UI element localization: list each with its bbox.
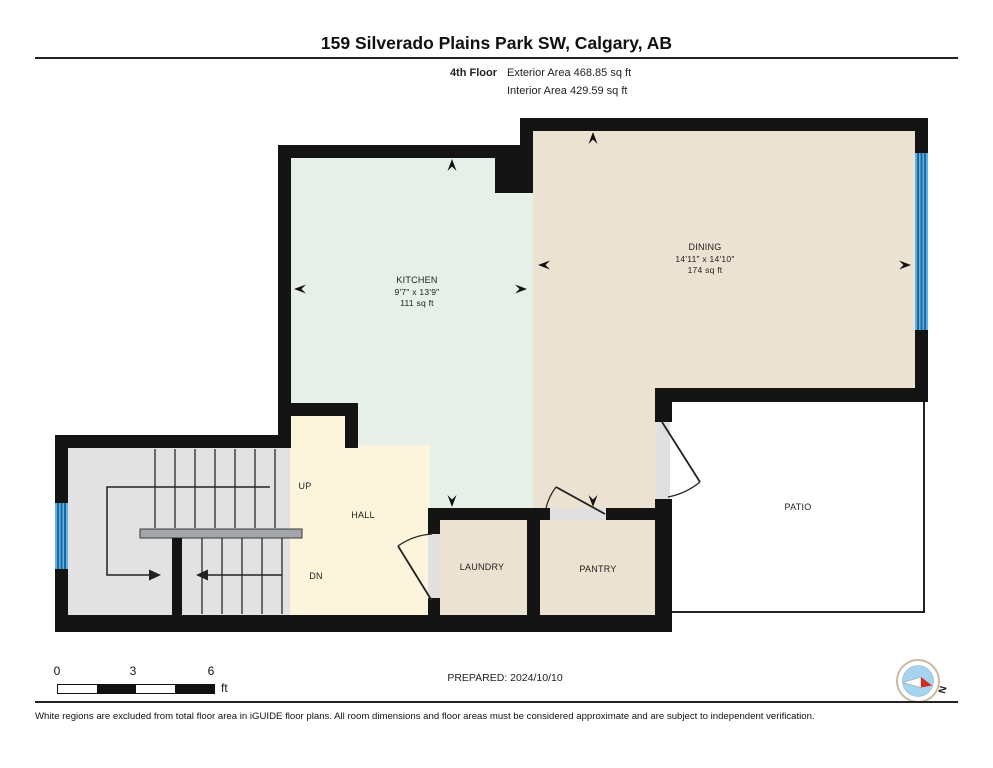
door-laundry (398, 534, 432, 601)
up-label: UP (293, 481, 317, 493)
dining-arrow-left (538, 261, 550, 270)
door-patio (662, 422, 700, 497)
door-pantry (546, 487, 605, 514)
scale-tick-0: 0 (47, 664, 67, 678)
kitchen-arrow-right (515, 285, 527, 294)
floor-plan-page: 159 Silverado Plains Park SW, Calgary, A… (0, 0, 993, 768)
dining-arrow-up (589, 132, 598, 144)
patio-label: PATIO (763, 502, 833, 514)
dining-label: DINING 14'11" x 14'10" 174 sq ft (630, 242, 780, 277)
kitchen-label: KITCHEN 9'7" x 13'9" 111 sq ft (347, 275, 487, 310)
measurement-arrows (294, 132, 911, 507)
footer-divider (35, 701, 958, 703)
stair-treads-lower (202, 538, 282, 614)
kitchen-arrow-down (448, 495, 457, 507)
prepared-date: PREPARED: 2024/10/10 (400, 672, 610, 684)
stair-handrail (140, 529, 302, 538)
disclaimer-text: White regions are excluded from total fl… (35, 711, 975, 722)
pantry-label: PANTRY (558, 564, 638, 576)
stair-treads-upper (155, 449, 275, 528)
scale-unit: ft (221, 681, 228, 695)
compass-icon (894, 656, 944, 706)
down-label: DN (304, 571, 328, 583)
stair-divider-wall (172, 538, 182, 615)
kitchen-arrow-left (294, 285, 306, 294)
scale-bar: 0 3 6 ft (47, 664, 247, 700)
scale-bar-track (57, 684, 215, 694)
stair-down-arrow (196, 570, 282, 581)
laundry-label: LAUNDRY (442, 562, 522, 574)
hall-label: HALL (333, 510, 393, 522)
scale-tick-6: 6 (201, 664, 221, 678)
kitchen-arrow-up (448, 159, 457, 171)
scale-tick-3: 3 (123, 664, 143, 678)
dining-arrow-right (899, 261, 911, 270)
plan-annotations-layer (0, 0, 993, 768)
